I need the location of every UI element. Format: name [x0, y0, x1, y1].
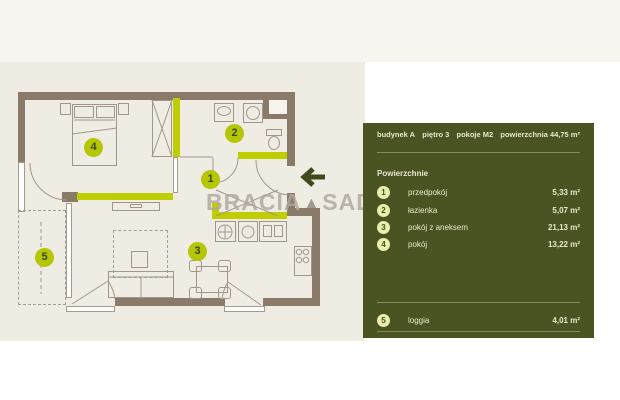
room-marker-4: 4: [84, 138, 103, 157]
rooms-label: pokoje M2: [457, 130, 494, 139]
room-name: pokój: [408, 240, 548, 249]
info-panel: budynek A piętro 3 pokoje M2 powierzchni…: [363, 123, 594, 338]
room-number-badge: 4: [377, 238, 390, 251]
room-row: 4 pokój 13,22 m²: [377, 236, 580, 252]
room-name: pokój z aneksem: [408, 223, 548, 232]
brand-logo-icon: ▲: [303, 195, 320, 212]
watermark-text-left: BRACIA: [206, 189, 301, 215]
room-number-badge: 1: [377, 186, 390, 199]
room-area: 5,07 m²: [552, 206, 580, 215]
unit-summary: budynek A piętro 3 pokoje M2 powierzchni…: [377, 130, 580, 139]
room-area: 21,13 m²: [548, 223, 580, 232]
room-row: 3 pokój z aneksem 21,13 m²: [377, 219, 580, 235]
back-arrow-icon[interactable]: [300, 167, 326, 187]
section-title: Powierzchnie: [377, 169, 428, 178]
room-marker-5: 5: [35, 248, 54, 267]
room-name: przedpokój: [408, 188, 552, 197]
room-marker-3: 3: [188, 242, 207, 261]
divider: [377, 152, 580, 153]
room-name: łazienka: [408, 206, 552, 215]
room-area: 5,33 m²: [552, 188, 580, 197]
room-marker-2: 2: [225, 124, 244, 143]
room-area: 13,22 m²: [548, 240, 580, 249]
floor-label: piętro 3: [422, 130, 449, 139]
room-marker-1: 1: [201, 170, 220, 189]
page: 1 2 3 4 5 BRACIA▲SADURSCY budynek A pięt…: [0, 0, 620, 400]
top-strip: [0, 0, 620, 62]
room-row: 5 loggia 4,01 m²: [377, 312, 580, 328]
divider: [377, 331, 580, 332]
total-area-label: powierzchnia 44,75 m²: [500, 130, 580, 139]
room-area: 4,01 m²: [552, 316, 580, 325]
divider: [377, 302, 580, 303]
room-row: 2 łazienka 5,07 m²: [377, 202, 580, 218]
building-label: budynek A: [377, 130, 415, 139]
room-row: 1 przedpokój 5,33 m²: [377, 184, 580, 200]
room-number-badge: 3: [377, 221, 390, 234]
room-name: loggia: [408, 316, 552, 325]
room-number-badge: 5: [377, 314, 390, 327]
room-number-badge: 2: [377, 204, 390, 217]
